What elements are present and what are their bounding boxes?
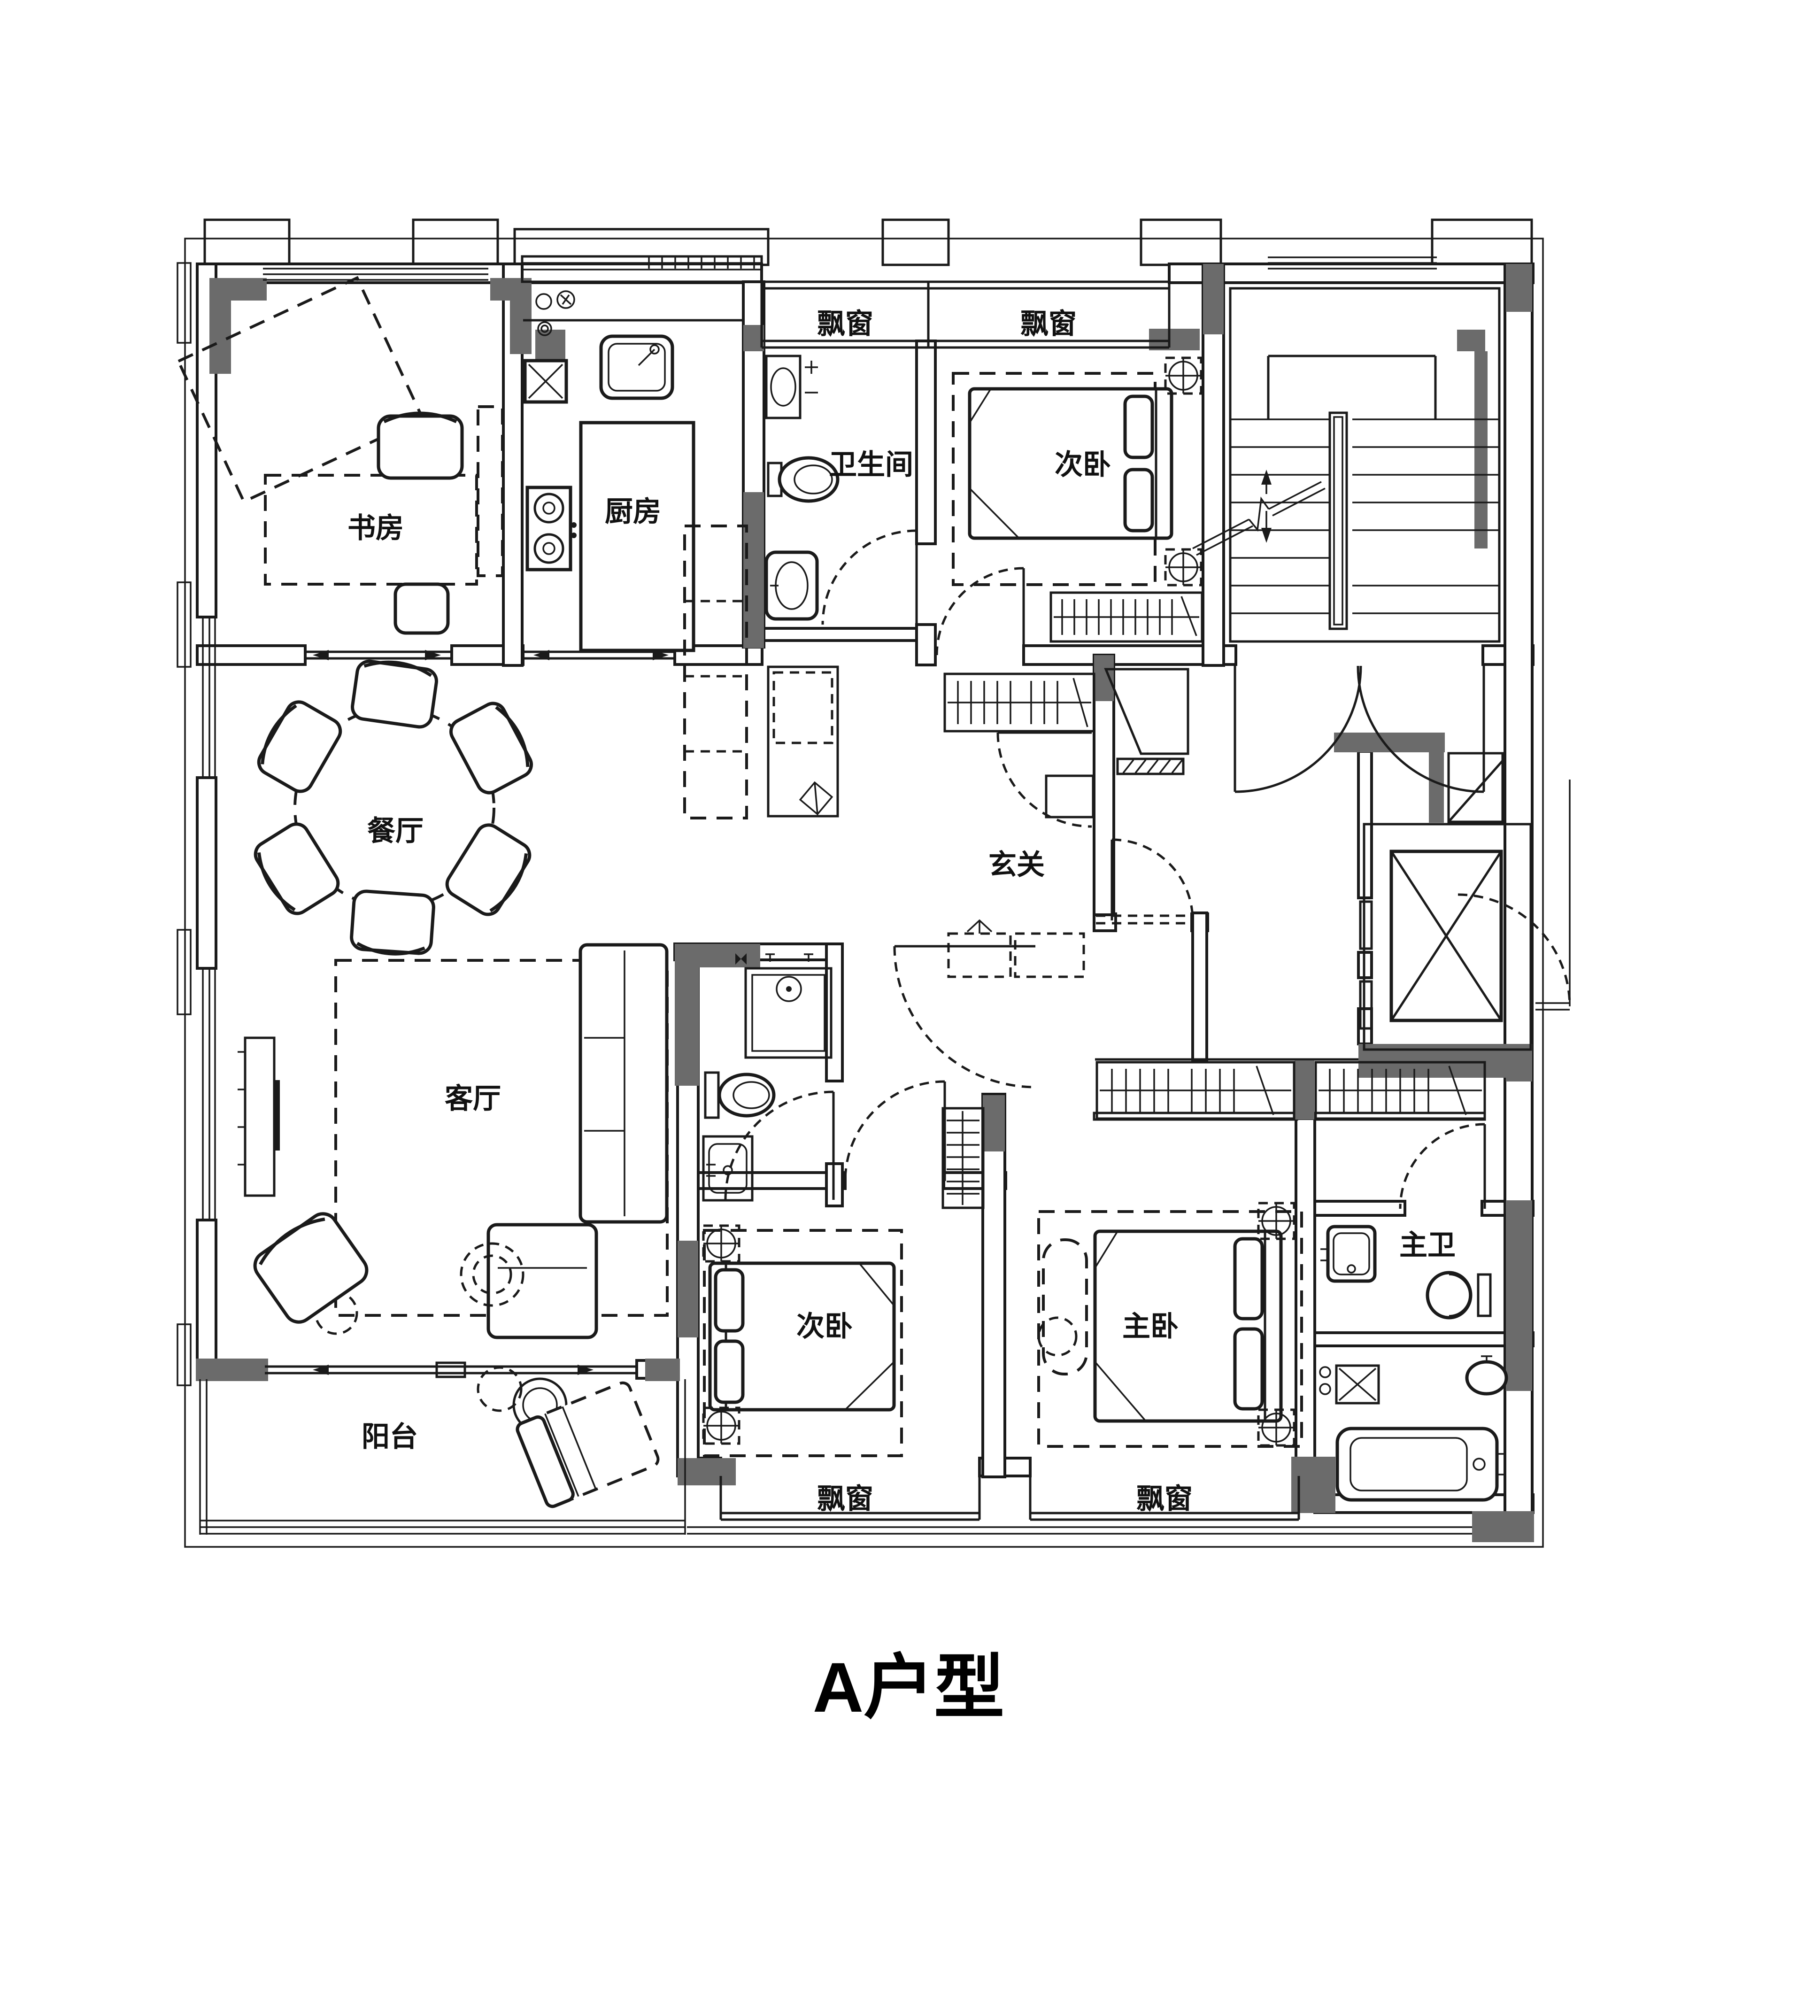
- room-dining: 餐厅: [249, 657, 538, 957]
- toilet: [1427, 1273, 1490, 1318]
- small-basin: [1467, 1356, 1506, 1394]
- bookshelf: [478, 407, 502, 576]
- room-living: 客厅: [238, 945, 667, 1337]
- side-chair: [395, 584, 448, 633]
- vent-hatch: [1118, 759, 1183, 774]
- kitchen-label: 厨房: [605, 496, 661, 527]
- kitchen-island: [581, 423, 694, 650]
- desk-chair: [378, 413, 462, 478]
- bay-window-top-left: 飘窗: [762, 282, 928, 348]
- bay-window-bottom-left: 飘窗: [721, 1476, 979, 1520]
- study-label: 书房: [347, 512, 404, 544]
- foyer-south-door: [895, 946, 1035, 1087]
- floor-plan-canvas: 飘窗 飘窗 飘窗 飘窗: [0, 0, 1820, 2016]
- master-bath-door: [1400, 1124, 1485, 1209]
- windows: [203, 256, 1437, 1221]
- bedside-lamp: [1165, 549, 1201, 585]
- chaise: [488, 1225, 596, 1337]
- room-bedroom-bottom: 次卧: [703, 1108, 983, 1456]
- master-bathroom-label: 主卫: [1399, 1229, 1456, 1261]
- lounge-chair: [516, 1381, 661, 1508]
- room-master-bath: 主卫: [1320, 1227, 1506, 1500]
- bedroom-top-door: [937, 568, 1024, 655]
- living-west-window: [203, 968, 215, 1221]
- bathtub: [1337, 1429, 1504, 1500]
- shoe-cabinet: [1046, 776, 1093, 817]
- room-middle-bath: [703, 953, 831, 1200]
- living-label: 客厅: [445, 1083, 501, 1114]
- plan-title: A户型: [813, 1648, 1004, 1727]
- room-bathroom: 卫生间: [766, 356, 913, 816]
- counter-fittings: [536, 291, 574, 335]
- floor-plan-page: 飘窗 飘窗 飘窗 飘窗: [0, 0, 1820, 2016]
- sofa: [488, 945, 667, 1337]
- vanity-sink: [1320, 1227, 1375, 1281]
- laundry-tub: [766, 552, 817, 619]
- study-sliding-door: [305, 650, 451, 660]
- toilet: [768, 458, 838, 501]
- dining-chairs: [249, 657, 538, 957]
- washbasin: [703, 1136, 752, 1200]
- wardrobe: [1051, 593, 1202, 641]
- foyer-closet-door: [998, 733, 1092, 826]
- room-bedroom-top: 次卧: [953, 358, 1202, 641]
- bay-window-bottom-right: 飘窗: [1030, 1476, 1299, 1520]
- tv: [274, 1080, 280, 1151]
- shaft-niche: [1449, 753, 1503, 822]
- armchair: [249, 1207, 372, 1328]
- room-foyer: 玄关: [945, 674, 1094, 977]
- tv-console: [238, 1038, 280, 1196]
- master-bedroom-label: 主卧: [1122, 1311, 1179, 1342]
- balcony-sliding-door: [265, 1363, 637, 1377]
- closet: [943, 1108, 983, 1208]
- bay-window-label: 飘窗: [1020, 308, 1077, 340]
- room-kitchen: 厨房: [523, 291, 747, 818]
- bath-sink: [766, 356, 818, 418]
- washing-machine: [1320, 1366, 1379, 1403]
- bay-window-label: 飘窗: [817, 308, 873, 340]
- bedside-lamp: [1165, 358, 1201, 394]
- stove: [527, 487, 577, 570]
- dining-west-window: [203, 616, 215, 779]
- toilet: [705, 1073, 774, 1118]
- stairwell: [1193, 288, 1499, 641]
- understair-slope: [1106, 669, 1188, 754]
- bay-window-label: 飘窗: [1136, 1483, 1193, 1514]
- room-balcony: 阳台: [362, 1367, 660, 1508]
- chaise: [1039, 1240, 1087, 1374]
- bedside-lamp: [703, 1408, 739, 1444]
- bedroom-bottom-label: 次卧: [796, 1311, 853, 1342]
- kitchen-sink: [601, 336, 672, 398]
- dining-label: 餐厅: [367, 815, 424, 847]
- bathroom-door: [823, 531, 917, 625]
- bath-cabinets: [768, 667, 838, 816]
- bay-window-top-right: 飘窗: [928, 282, 1169, 348]
- fridge: [525, 361, 566, 402]
- balcony-label: 阳台: [362, 1421, 418, 1452]
- shower: [735, 953, 831, 1058]
- foyer-bench: [949, 920, 1084, 977]
- bay-window-label: 飘窗: [817, 1483, 873, 1514]
- bedroom-bottom-door: [845, 1081, 945, 1181]
- bathroom-label: 卫生间: [829, 449, 913, 480]
- foyer-closet: [945, 674, 1094, 731]
- bedroom-top-label: 次卧: [1055, 449, 1111, 480]
- foyer-label: 玄关: [988, 849, 1045, 881]
